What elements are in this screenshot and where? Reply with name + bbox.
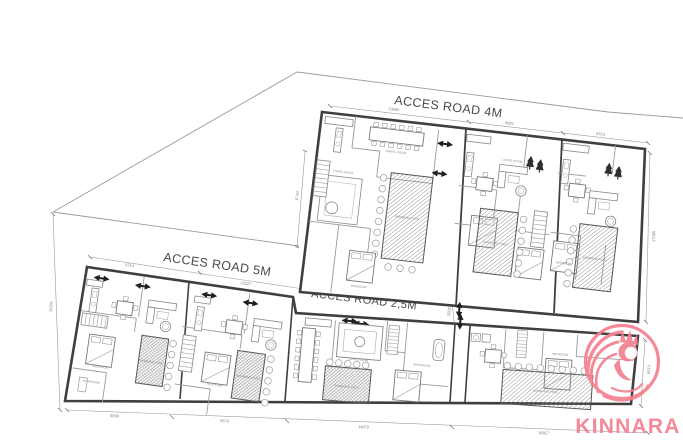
dim-lower-top-b: 12027 xyxy=(240,280,252,287)
dim-site-left: 16331 xyxy=(48,300,54,312)
road-label-5m: ACCES ROAD 5M xyxy=(163,250,273,279)
upper-block: SWIMMING POOL BEDROOM LIVING ROOM DINING… xyxy=(300,112,645,322)
dim-bottom-a: 9866 xyxy=(110,413,120,418)
dim-lower-top-a: 9714 xyxy=(125,262,135,268)
road-label-4m: ACCES ROAD 4M xyxy=(394,93,504,121)
dim-bottom-d: 16817 xyxy=(538,430,550,436)
logo-face xyxy=(625,347,637,359)
dim-bottom-b: 9673 xyxy=(220,418,230,423)
dim-left-upper: 6710 xyxy=(294,190,300,200)
site-plan-page: 13680 8801 9753 17085 6510 16331 6710 97… xyxy=(0,0,683,441)
dim-right-lower: 6510 xyxy=(646,364,651,374)
dim-path-width: 2500 xyxy=(446,306,452,316)
dim-bottom-c: 14070 xyxy=(358,424,370,430)
bed-icon xyxy=(86,334,116,367)
bed-icon xyxy=(393,370,422,402)
laundry-appliance xyxy=(482,334,491,343)
stairs xyxy=(387,325,400,355)
bathtub xyxy=(432,339,445,361)
logo-wordmark: KINNARA xyxy=(575,415,680,438)
dim-top-b: 8801 xyxy=(505,120,515,126)
round-table xyxy=(354,336,365,347)
bed-icon xyxy=(201,352,231,385)
stairs xyxy=(516,330,528,358)
dim-right-upper: 17085 xyxy=(651,230,656,242)
site-plan-drawing: 13680 8801 9753 17085 6510 16331 6710 97… xyxy=(0,0,683,441)
laundry-appliance xyxy=(471,333,481,342)
dim-top-c: 9753 xyxy=(596,131,606,137)
bed-icon xyxy=(346,250,375,283)
